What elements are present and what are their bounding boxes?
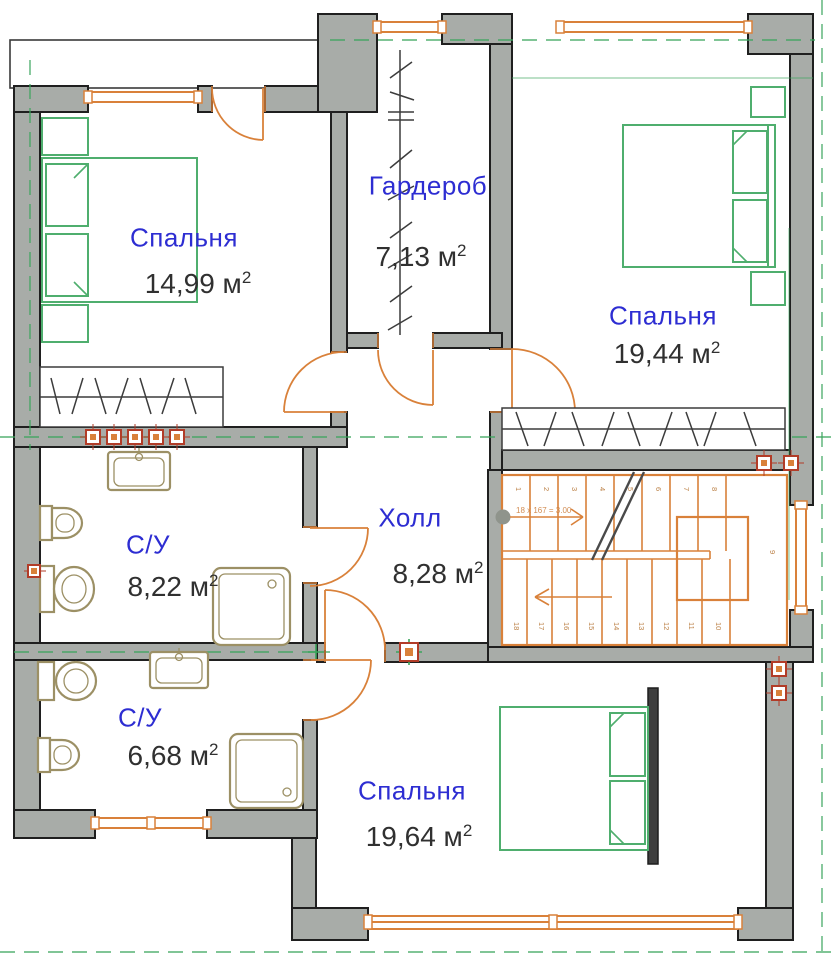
balcony-outline: [10, 40, 322, 88]
window-bedroom-2: [556, 21, 752, 33]
area-superscript: 2: [711, 338, 720, 357]
bidet-icon-bathroom-2: [38, 738, 79, 772]
svg-text:7: 7: [682, 487, 691, 491]
sink-icon-bathroom-2: [150, 648, 208, 688]
window-bedroom-1: [84, 91, 202, 103]
room-label-wardrobe: Гардероб: [369, 171, 487, 202]
svg-text:17: 17: [537, 622, 546, 630]
svg-text:2: 2: [542, 487, 551, 491]
svg-text:11: 11: [687, 622, 696, 630]
area-superscript: 2: [209, 571, 218, 590]
svg-text:3: 3: [570, 487, 579, 491]
room-label-bathroom-2: С/У: [118, 703, 162, 734]
svg-text:1: 1: [514, 487, 523, 491]
room-area-wardrobe: 7,13 м2: [376, 241, 467, 273]
floor-plan: 18 x 167 = 3.00 1 2 3 4 5 6 7 8 9 18 17 …: [0, 0, 837, 960]
toilet-icon-bathroom-2: [38, 662, 96, 700]
sink-icon-bathroom-1: [108, 448, 170, 490]
room-label-bedroom-1: Спальня: [130, 223, 238, 254]
door-bathroom-1: [310, 528, 368, 586]
room-area-bathroom-1: 8,22 м2: [128, 571, 219, 603]
door-bedroom-1: [284, 352, 344, 412]
svg-text:13: 13: [637, 622, 646, 630]
shower-icon-bathroom-2: [230, 734, 303, 808]
stair-annotation: 18 x 167 = 3.00: [516, 506, 572, 515]
door-bedroom-2: [512, 349, 575, 412]
area-superscript: 2: [209, 740, 218, 759]
room-area-hall: 8,28 м2: [393, 558, 484, 590]
door-bathroom-2: [311, 660, 371, 720]
door-wardrobe: [378, 350, 433, 405]
svg-text:14: 14: [612, 622, 621, 630]
bidet-icon-bathroom-1: [40, 506, 82, 540]
window-bedroom-3: [364, 915, 742, 929]
svg-text:5: 5: [626, 487, 635, 491]
staircase: 18 x 167 = 3.00 1 2 3 4 5 6 7 8 9 18 17 …: [496, 472, 788, 645]
svg-text:16: 16: [562, 622, 571, 630]
svg-text:12: 12: [662, 622, 671, 630]
bed-icon-bedroom-3: [500, 688, 658, 864]
window-bathroom-2: [91, 817, 211, 829]
window-stair-landing: [795, 501, 807, 614]
closet-icon-bedroom-2: [502, 408, 785, 450]
stair-landing-number: 9: [768, 550, 777, 554]
svg-text:10: 10: [714, 622, 723, 630]
bed-icon-bedroom-2: [623, 87, 785, 305]
area-superscript: 2: [457, 241, 466, 260]
room-area-bedroom-3: 19,64 м2: [366, 821, 473, 853]
svg-text:15: 15: [587, 622, 596, 630]
area-superscript: 2: [242, 268, 251, 287]
window-wardrobe: [373, 21, 446, 33]
axis-marker: [396, 639, 422, 665]
room-label-bathroom-1: С/У: [126, 530, 170, 561]
closet-icon-bedroom-1: [40, 367, 223, 427]
svg-text:8: 8: [710, 487, 719, 491]
room-label-bedroom-3: Спальня: [358, 776, 466, 807]
shower-icon-bathroom-1: [213, 568, 290, 645]
svg-text:18: 18: [512, 622, 521, 630]
door-bedroom-3: [325, 590, 385, 650]
area-superscript: 2: [463, 821, 472, 840]
plan-drawing: 18 x 167 = 3.00 1 2 3 4 5 6 7 8 9 18 17 …: [0, 0, 837, 960]
svg-text:6: 6: [654, 487, 663, 491]
svg-text:4: 4: [598, 487, 607, 491]
room-area-bedroom-2: 19,44 м2: [614, 338, 721, 370]
room-area-bedroom-1: 14,99 м2: [145, 268, 252, 300]
toilet-icon-bathroom-1: [40, 566, 94, 612]
room-label-hall: Холл: [378, 503, 441, 534]
room-area-bathroom-2: 6,68 м2: [128, 740, 219, 772]
area-superscript: 2: [474, 558, 483, 577]
stair-start-circle: [496, 510, 511, 525]
room-label-bedroom-2: Спальня: [609, 301, 717, 332]
door-balcony: [212, 88, 263, 140]
